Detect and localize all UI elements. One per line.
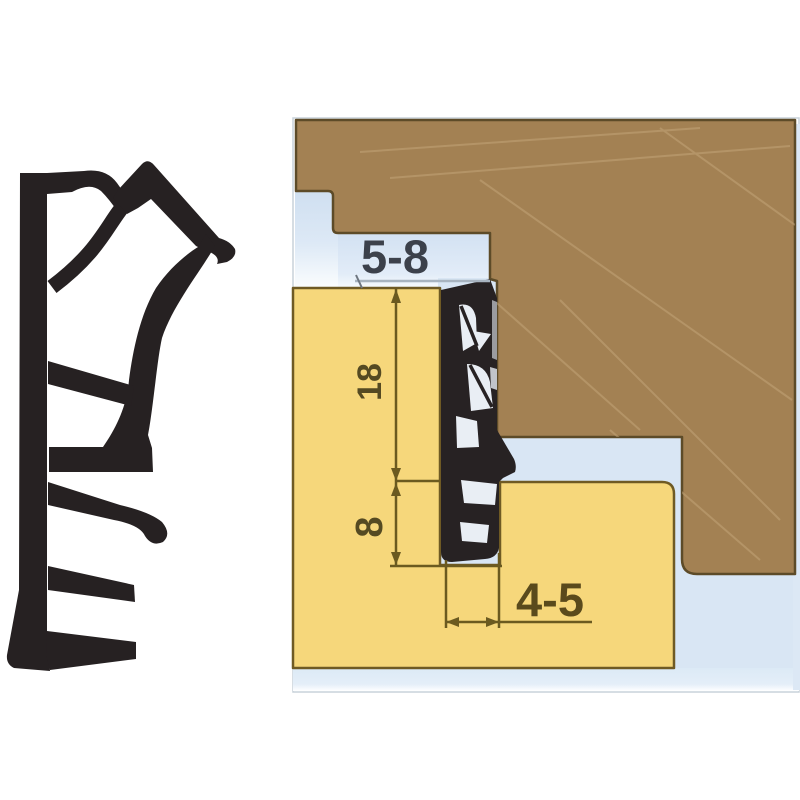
svg-text:5-8: 5-8 [361, 230, 429, 283]
svg-text:8: 8 [349, 516, 391, 537]
svg-text:18: 18 [351, 363, 389, 401]
svg-text:4-5: 4-5 [516, 573, 584, 626]
